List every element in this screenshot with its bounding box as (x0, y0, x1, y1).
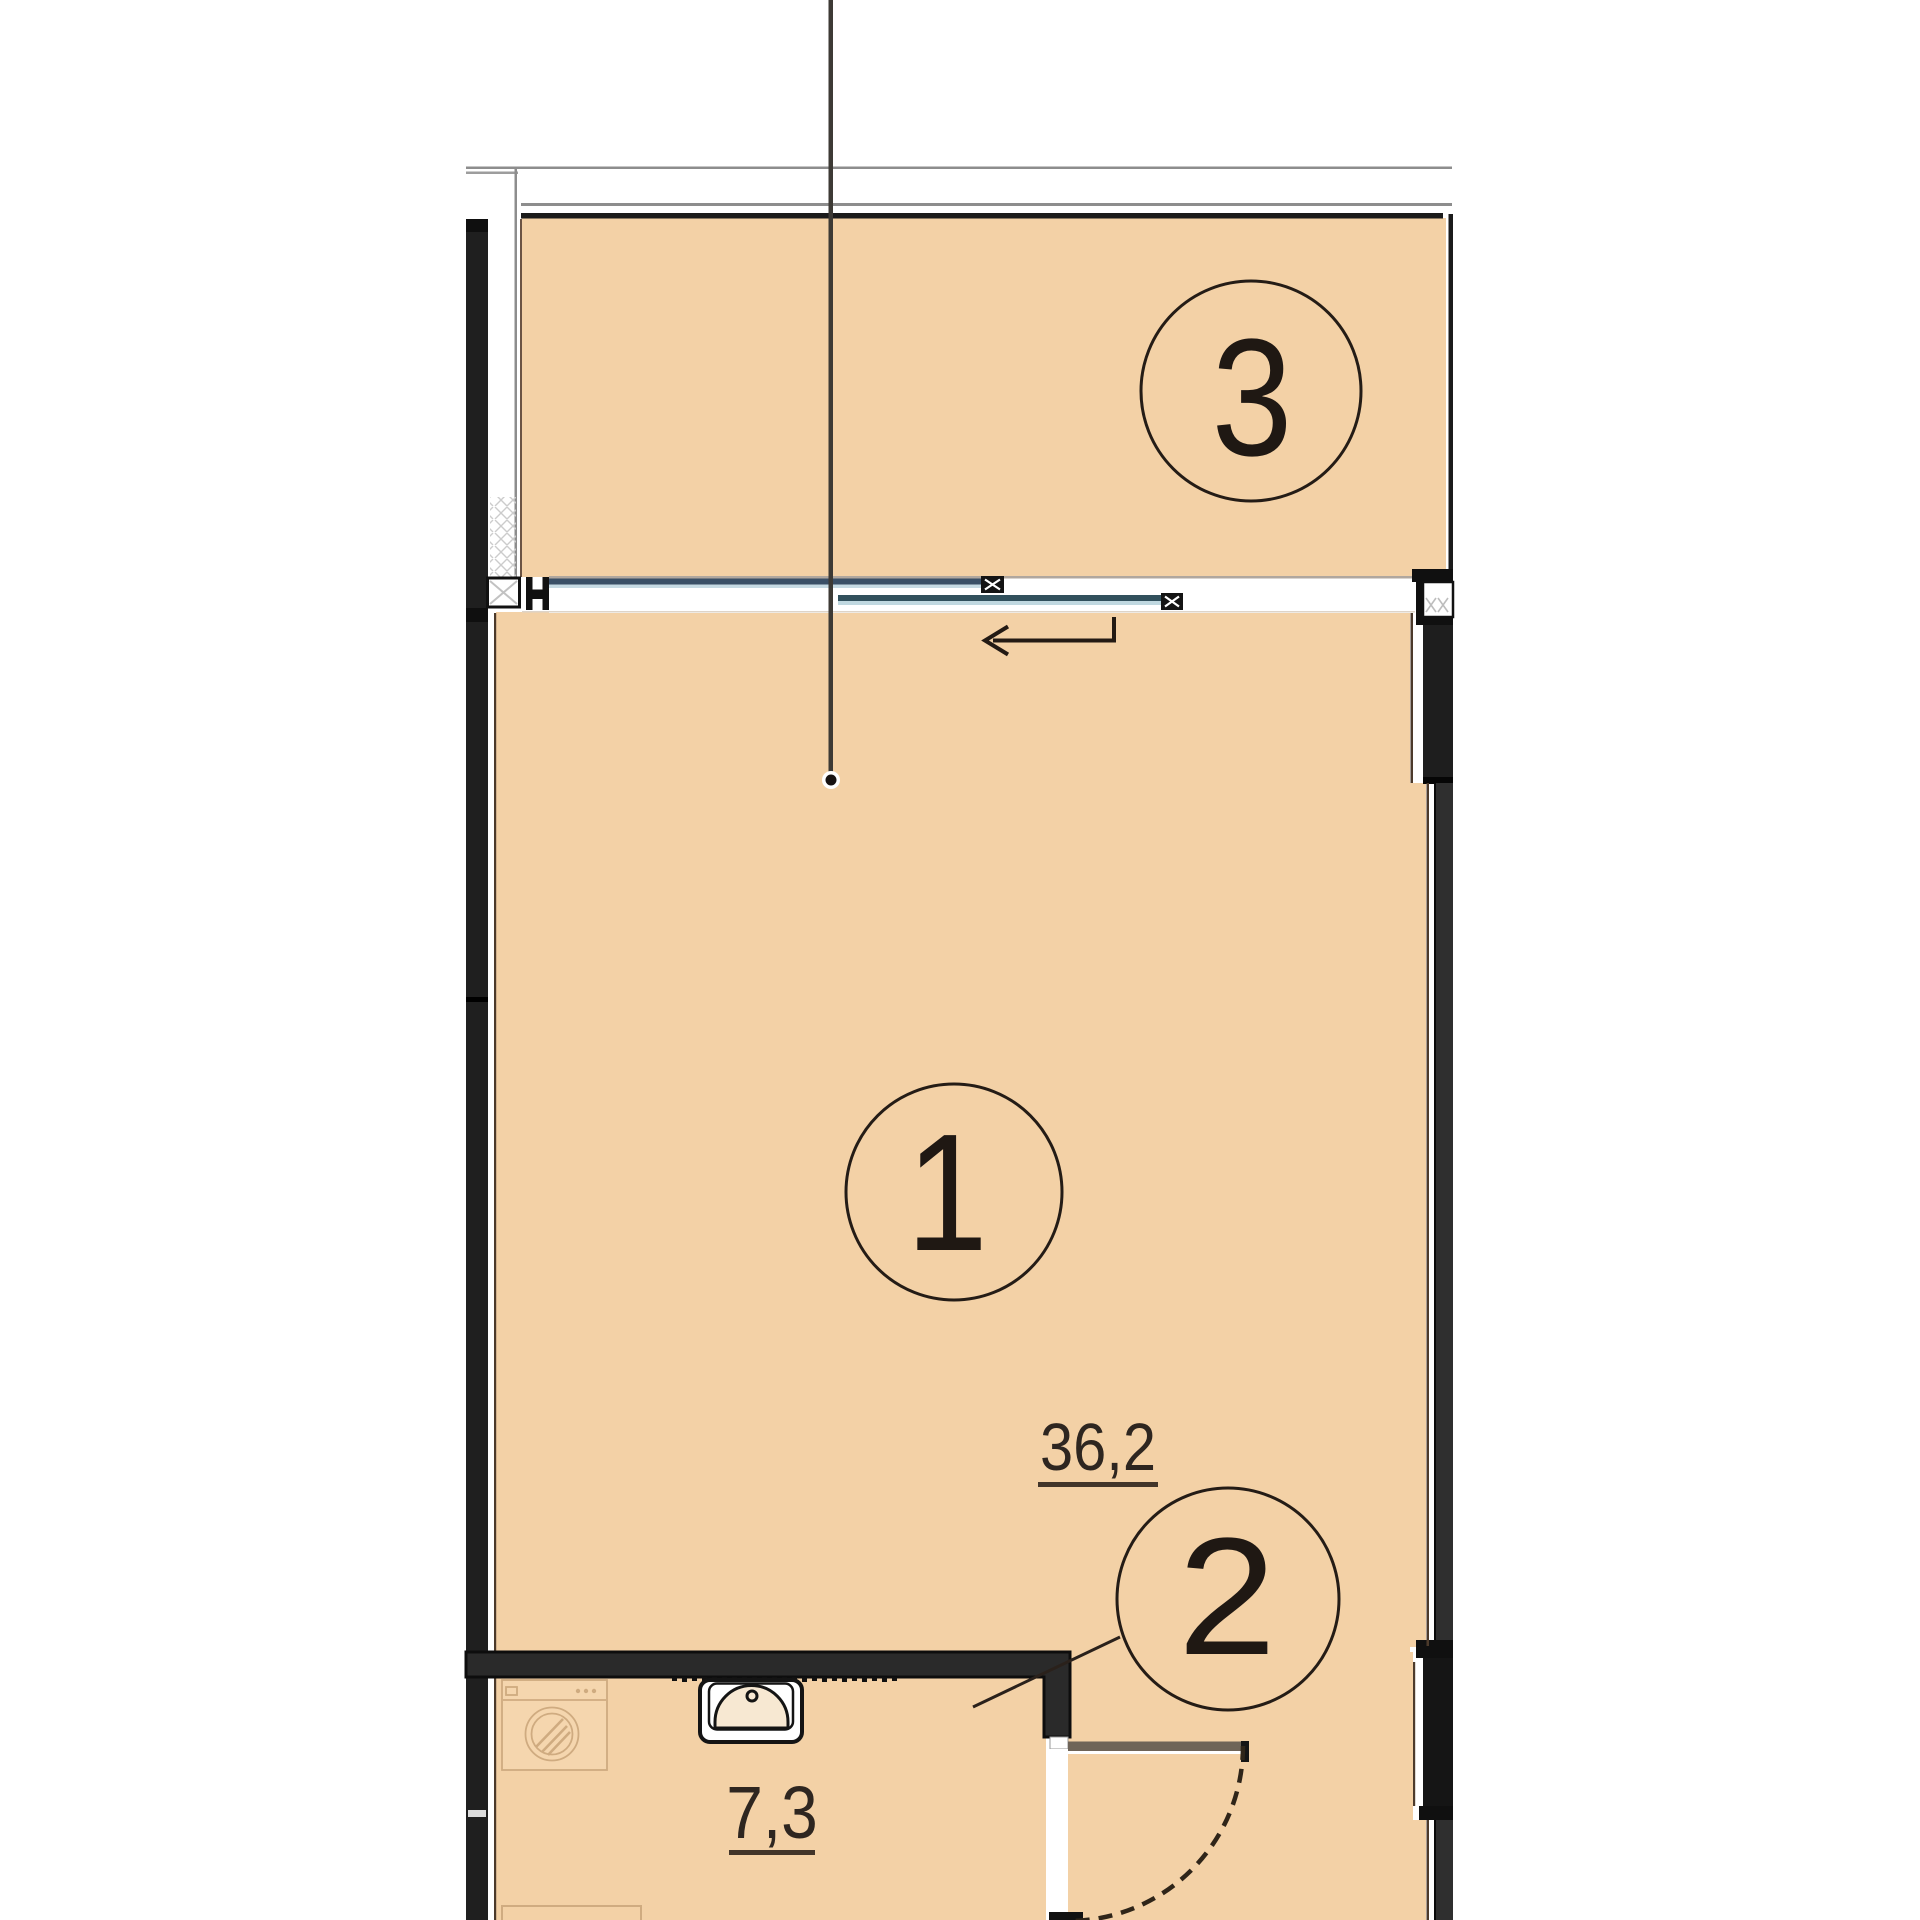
svg-text:2: 2 (1178, 1504, 1276, 1690)
svg-text:1: 1 (906, 1100, 988, 1286)
svg-text:7,3: 7,3 (726, 1771, 818, 1853)
svg-text:36,2: 36,2 (1040, 1411, 1156, 1485)
svg-text:3: 3 (1212, 305, 1293, 492)
